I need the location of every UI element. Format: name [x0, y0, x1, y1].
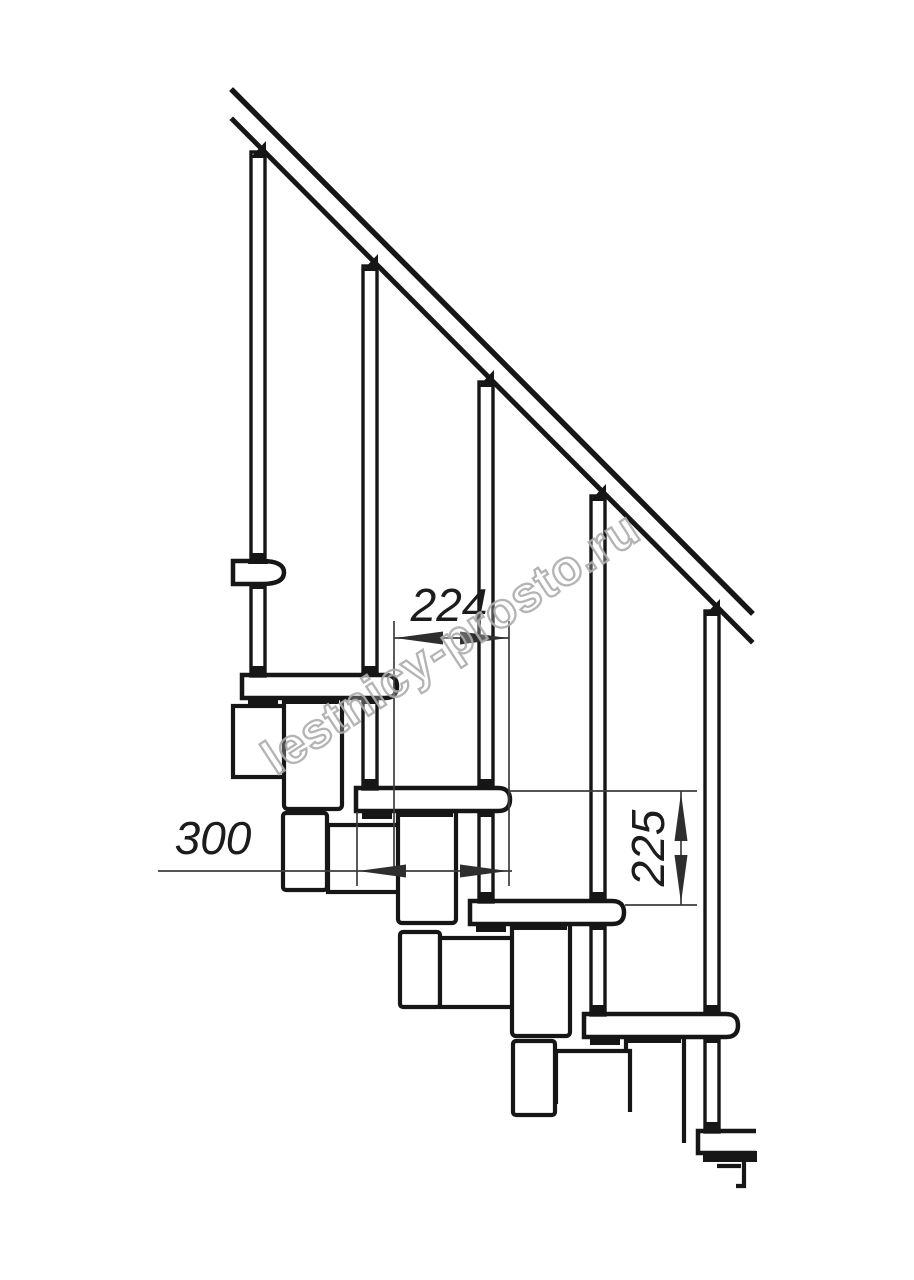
mount-strip — [248, 696, 278, 706]
tread-5 — [584, 1014, 738, 1037]
baluster-1-lower — [251, 584, 265, 676]
module-box — [283, 813, 327, 890]
module-stem — [626, 1036, 684, 1143]
module-stem — [398, 810, 456, 923]
baluster-collar — [478, 809, 494, 817]
baluster-5-upper — [705, 611, 719, 1014]
mount-strip — [590, 1035, 620, 1045]
tread-1-stub — [233, 561, 284, 584]
module-fragment — [717, 1160, 744, 1186]
dimension-value-depth: 300 — [175, 812, 252, 864]
dimension-value-rise: 225 — [622, 809, 674, 887]
module-stem — [512, 923, 570, 1036]
arrow-up-icon — [675, 793, 688, 841]
baluster-collar — [590, 922, 606, 930]
module-box — [513, 1041, 555, 1115]
mount-strip — [476, 922, 506, 932]
baluster-collar — [704, 1035, 720, 1043]
tread-4 — [470, 901, 624, 924]
baluster-2-upper — [363, 266, 377, 675]
module-box — [400, 932, 440, 1007]
mount-strip — [362, 809, 392, 819]
baluster-3-lower — [479, 811, 493, 902]
drawing-sheet: 224 300 225 lestnicy-prosto.ru — [0, 0, 914, 1280]
baluster-4-lower — [591, 924, 605, 1015]
staircase-diagram: 224 300 225 lestnicy-prosto.ru — [0, 0, 914, 1280]
mount-strip — [396, 811, 453, 817]
baluster-5-lower — [705, 1037, 719, 1132]
mount-strip — [510, 924, 567, 930]
arrow-down-icon — [675, 855, 688, 903]
tread-3 — [356, 788, 510, 811]
module-box — [328, 825, 402, 892]
baluster-1-upper — [251, 152, 265, 562]
baluster-collar — [250, 582, 266, 589]
mount-strip — [703, 1151, 757, 1162]
module-box — [440, 938, 517, 1007]
mount-strip — [624, 1037, 681, 1043]
module-box — [556, 1051, 630, 1112]
tread-6-partial — [698, 1131, 756, 1153]
